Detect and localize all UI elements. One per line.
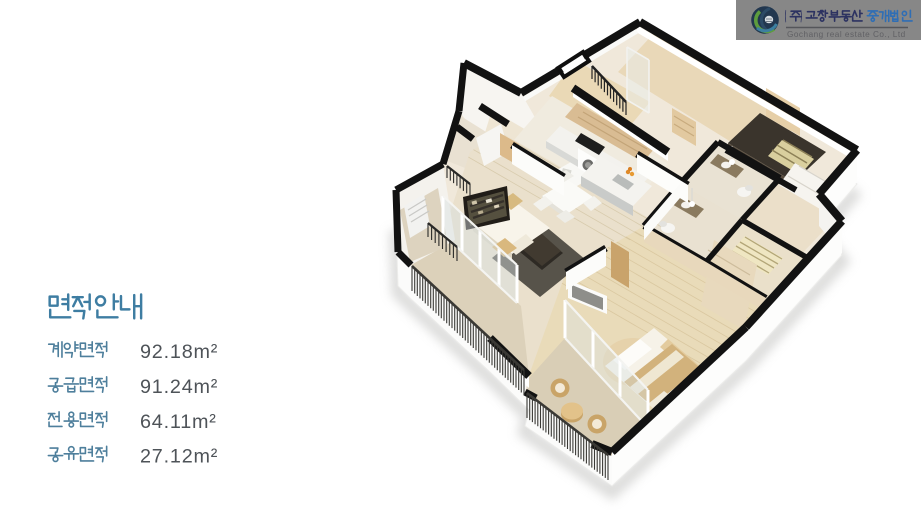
svg-text:Gochang real estate Co., Ltd: Gochang real estate Co., Ltd bbox=[787, 30, 906, 39]
svg-text:91.24m²: 91.24m² bbox=[140, 376, 218, 398]
svg-text:92.18m²: 92.18m² bbox=[140, 341, 218, 363]
svg-text:27.12m²: 27.12m² bbox=[140, 446, 218, 468]
svg-text:64.11m²: 64.11m² bbox=[140, 411, 217, 433]
